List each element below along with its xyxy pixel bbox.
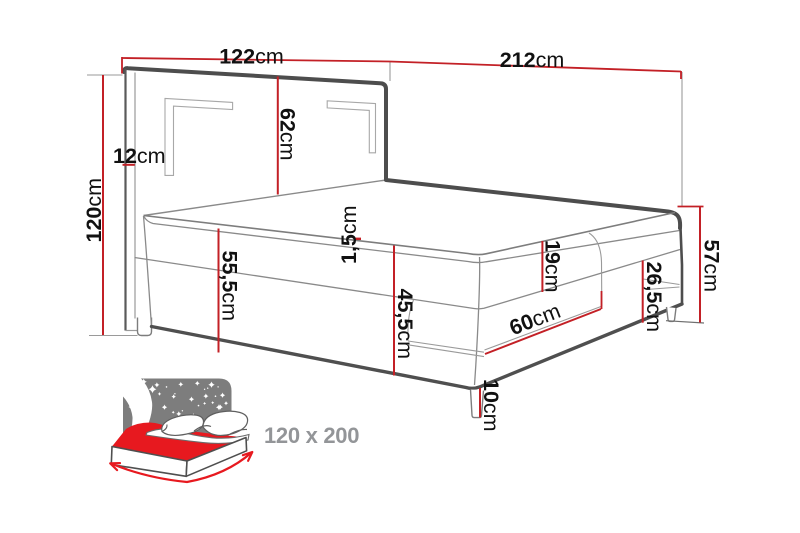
svg-text:45,5cm: 45,5cm [393,289,417,360]
svg-text:55,5cm: 55,5cm [218,251,242,322]
svg-text:1,5cm: 1,5cm [337,205,361,264]
svg-text:120cm: 120cm [82,178,106,243]
svg-text:12cm: 12cm [113,144,166,168]
svg-text:26,5cm: 26,5cm [642,262,666,333]
svg-text:10cm: 10cm [479,379,503,432]
svg-text:62cm: 62cm [276,108,300,161]
svg-text:57cm: 57cm [700,240,724,293]
svg-text:120 x 200: 120 x 200 [264,423,359,448]
svg-text:212cm: 212cm [500,48,565,72]
svg-text:122cm: 122cm [219,45,284,69]
svg-text:19cm: 19cm [541,240,565,293]
